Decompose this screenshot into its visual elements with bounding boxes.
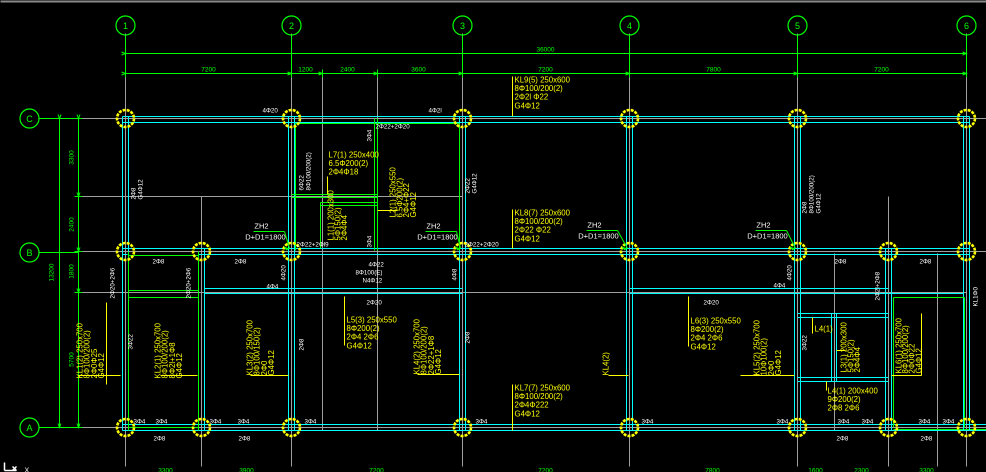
svg-text:B: B [26, 248, 32, 258]
svg-text:8Φ100(E): 8Φ100(E) [356, 270, 383, 277]
svg-text:ZH2: ZH2 [254, 222, 268, 231]
svg-text:2Φ8: 2Φ8 [154, 436, 166, 443]
svg-text:3900: 3900 [239, 468, 254, 472]
svg-text:36000: 36000 [536, 47, 554, 54]
svg-text:G4Φ12: G4Φ12 [347, 341, 372, 350]
svg-text:L4(1): L4(1) [815, 325, 834, 334]
svg-text:7200: 7200 [874, 67, 889, 74]
svg-text:6: 6 [964, 21, 969, 31]
svg-text:1600: 1600 [808, 468, 823, 472]
svg-text:G4Φ12: G4Φ12 [138, 179, 145, 200]
svg-text:2Φ8: 2Φ8 [235, 259, 247, 266]
svg-text:2400: 2400 [69, 217, 76, 232]
svg-text:G4Φ12: G4Φ12 [267, 350, 276, 375]
svg-text:KL1Φ0: KL1Φ0 [973, 287, 980, 307]
svg-text:2Φ4Φ18: 2Φ4Φ18 [329, 168, 359, 177]
svg-text:3Φ4: 3Φ4 [919, 419, 931, 426]
svg-text:2Φ20: 2Φ20 [367, 300, 383, 307]
svg-text:8Φ100/200(2): 8Φ100/200(2) [306, 152, 313, 190]
svg-text:2Φ4Φ4: 2Φ4Φ4 [340, 214, 349, 240]
svg-text:7200: 7200 [538, 67, 553, 74]
svg-text:6Φ22: 6Φ22 [299, 175, 306, 191]
svg-text:2Φ8: 2Φ8 [153, 259, 165, 266]
svg-text:4Φ20: 4Φ20 [787, 265, 794, 281]
svg-text:2Φ20+2Φ6: 2Φ20+2Φ6 [110, 267, 117, 298]
svg-text:7200: 7200 [369, 468, 384, 472]
svg-text:2Φ22+2Φ20: 2Φ22+2Φ20 [465, 242, 500, 249]
svg-text:2Φ22+2Φl9: 2Φ22+2Φl9 [297, 242, 330, 249]
svg-text:2Φ22: 2Φ22 [465, 178, 472, 194]
svg-text:3Φ22: 3Φ22 [128, 334, 135, 350]
svg-text:4Φ20: 4Φ20 [281, 265, 288, 281]
svg-text:N4Φ12: N4Φ12 [363, 278, 383, 285]
svg-text:4: 4 [627, 21, 632, 31]
svg-text:A: A [26, 423, 32, 433]
svg-text:2Φ8: 2Φ8 [299, 338, 306, 350]
svg-text:3Φ4: 3Φ4 [210, 419, 222, 426]
svg-text:G4Φ12: G4Φ12 [774, 350, 783, 375]
svg-text:3Φ22: 3Φ22 [802, 335, 809, 351]
svg-text:2: 2 [289, 21, 294, 31]
svg-text:G4Φ12: G4Φ12 [434, 349, 443, 374]
svg-text:2Φ8: 2Φ8 [920, 259, 932, 266]
svg-text:3Φ4: 3Φ4 [777, 419, 789, 426]
svg-text:G4Φ12: G4Φ12 [515, 409, 540, 418]
svg-text:G4Φ12: G4Φ12 [409, 192, 418, 217]
svg-text:4Φ22: 4Φ22 [369, 262, 385, 269]
svg-text:D+D1=1800: D+D1=1800 [417, 233, 457, 242]
svg-text:G4Φ12: G4Φ12 [691, 342, 716, 351]
svg-text:2Φ2l+2Φ8: 2Φ2l+2Φ8 [875, 271, 882, 300]
svg-text:3Φ4: 3Φ4 [862, 419, 874, 426]
svg-text:3Φ4: 3Φ4 [305, 419, 317, 426]
svg-text:1: 1 [123, 21, 128, 31]
svg-text:D+D1=1800: D+D1=1800 [747, 232, 787, 241]
svg-text:3Φ4: 3Φ4 [367, 129, 374, 141]
svg-text:2400: 2400 [340, 67, 355, 74]
svg-text:G4Φ12: G4Φ12 [816, 193, 823, 214]
svg-text:2Φ22+2Φ20: 2Φ22+2Φ20 [376, 124, 411, 131]
svg-text:3: 3 [460, 21, 465, 31]
svg-text:7800: 7800 [706, 67, 721, 74]
svg-text:G4Φ12: G4Φ12 [515, 101, 540, 110]
svg-text:3Φ4: 3Φ4 [943, 419, 955, 426]
svg-text:3Φ4: 3Φ4 [838, 419, 850, 426]
svg-text:D+D1=1800: D+D1=1800 [245, 233, 285, 242]
svg-text:2Φ8 2Φ6: 2Φ8 2Φ6 [828, 404, 860, 413]
svg-text:2Φ4Φ4: 2Φ4Φ4 [853, 346, 862, 372]
svg-text:C: C [26, 114, 33, 124]
svg-text:3Φ4: 3Φ4 [238, 419, 250, 426]
svg-text:G4Φ12: G4Φ12 [515, 234, 540, 243]
svg-text:4Φ20: 4Φ20 [263, 108, 279, 115]
svg-text:4Φ4: 4Φ4 [774, 283, 786, 290]
svg-text:7200: 7200 [538, 468, 553, 472]
svg-text:3Φ4: 3Φ4 [476, 419, 488, 426]
svg-text:3Φ4: 3Φ4 [156, 419, 168, 426]
svg-text:G4Φ12: G4Φ12 [175, 353, 184, 378]
svg-text:2Φ8: 2Φ8 [802, 201, 809, 213]
svg-text:3300: 3300 [158, 468, 173, 472]
svg-text:ZH2: ZH2 [587, 221, 601, 230]
svg-text:3Φ4: 3Φ4 [642, 419, 654, 426]
svg-text:KL4(2): KL4(2) [602, 352, 611, 376]
svg-text:G4Φ12: G4Φ12 [97, 353, 106, 378]
svg-text:3Φ4: 3Φ4 [134, 419, 146, 426]
svg-text:3Φ4: 3Φ4 [367, 235, 374, 247]
svg-text:ZH2: ZH2 [756, 221, 770, 230]
svg-text:3300: 3300 [69, 150, 76, 165]
svg-text:1800: 1800 [69, 264, 76, 279]
svg-text:3300: 3300 [919, 468, 934, 472]
svg-text:13200: 13200 [49, 263, 56, 281]
svg-text:4Φ8: 4Φ8 [452, 268, 459, 280]
svg-text:2Φ20: 2Φ20 [704, 300, 720, 307]
svg-text:4Φ2l: 4Φ2l [429, 108, 442, 115]
svg-text:8Φ100/200(2): 8Φ100/200(2) [809, 175, 816, 213]
svg-text:5: 5 [795, 21, 800, 31]
svg-text:7800: 7800 [705, 468, 720, 472]
svg-text:D+D1=1800: D+D1=1800 [578, 232, 618, 241]
svg-text:2Φ8: 2Φ8 [837, 436, 849, 443]
svg-text:G4Φ12: G4Φ12 [472, 173, 479, 194]
svg-text:2Φ8: 2Φ8 [465, 331, 472, 343]
svg-text:3600: 3600 [411, 67, 426, 74]
svg-text:2Φ8: 2Φ8 [835, 259, 847, 266]
svg-text:ZH2: ZH2 [426, 222, 440, 231]
svg-text:4Φ4: 4Φ4 [267, 284, 279, 291]
svg-text:7200: 7200 [201, 67, 216, 74]
svg-text:2Φ8: 2Φ8 [131, 187, 138, 199]
svg-text:2Φ20+2Φ6: 2Φ20+2Φ6 [186, 267, 193, 298]
svg-text:X: X [25, 468, 30, 472]
svg-text:5700: 5700 [69, 352, 76, 367]
svg-text:2Φ8: 2Φ8 [921, 436, 933, 443]
svg-text:1200: 1200 [298, 67, 313, 74]
svg-text:2Φ8: 2Φ8 [239, 436, 251, 443]
svg-text:2300: 2300 [854, 468, 869, 472]
